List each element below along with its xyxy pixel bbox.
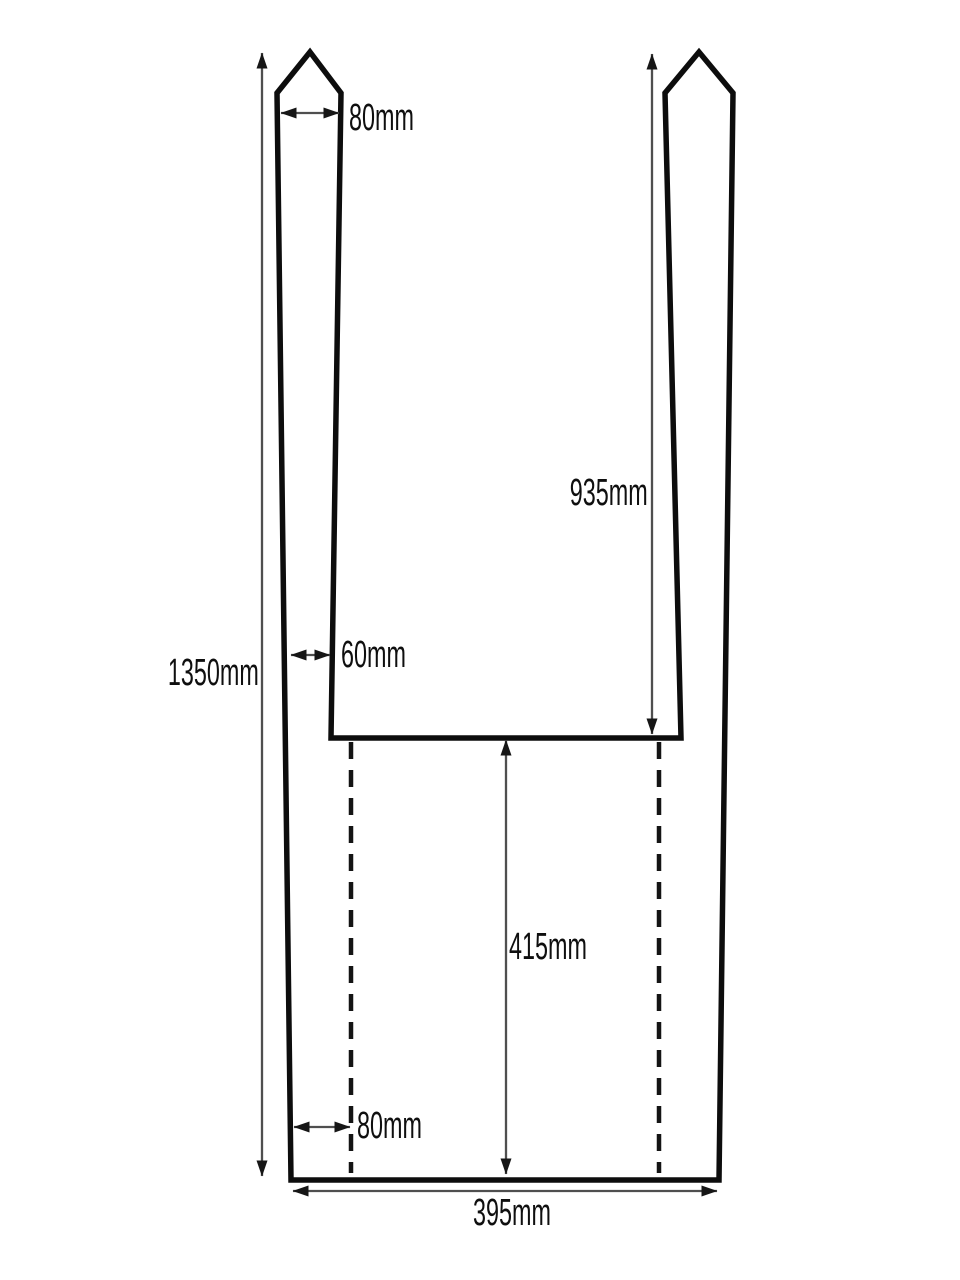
label-opening-depth: 935mm	[570, 474, 648, 512]
label-total-width: 395mm	[473, 1194, 551, 1232]
technical-drawing-canvas: 80mm 935mm 60mm 1350mm 415mm 80mm 395mm	[0, 0, 960, 1280]
drawing-svg	[0, 0, 960, 1280]
label-strap-top-width: 80mm	[349, 99, 414, 137]
label-total-height: 1350mm	[168, 654, 259, 692]
label-lower-section-height: 415mm	[509, 928, 587, 966]
label-strap-bottom-width: 60mm	[341, 636, 406, 674]
label-bottom-fold-offset: 80mm	[357, 1107, 422, 1145]
